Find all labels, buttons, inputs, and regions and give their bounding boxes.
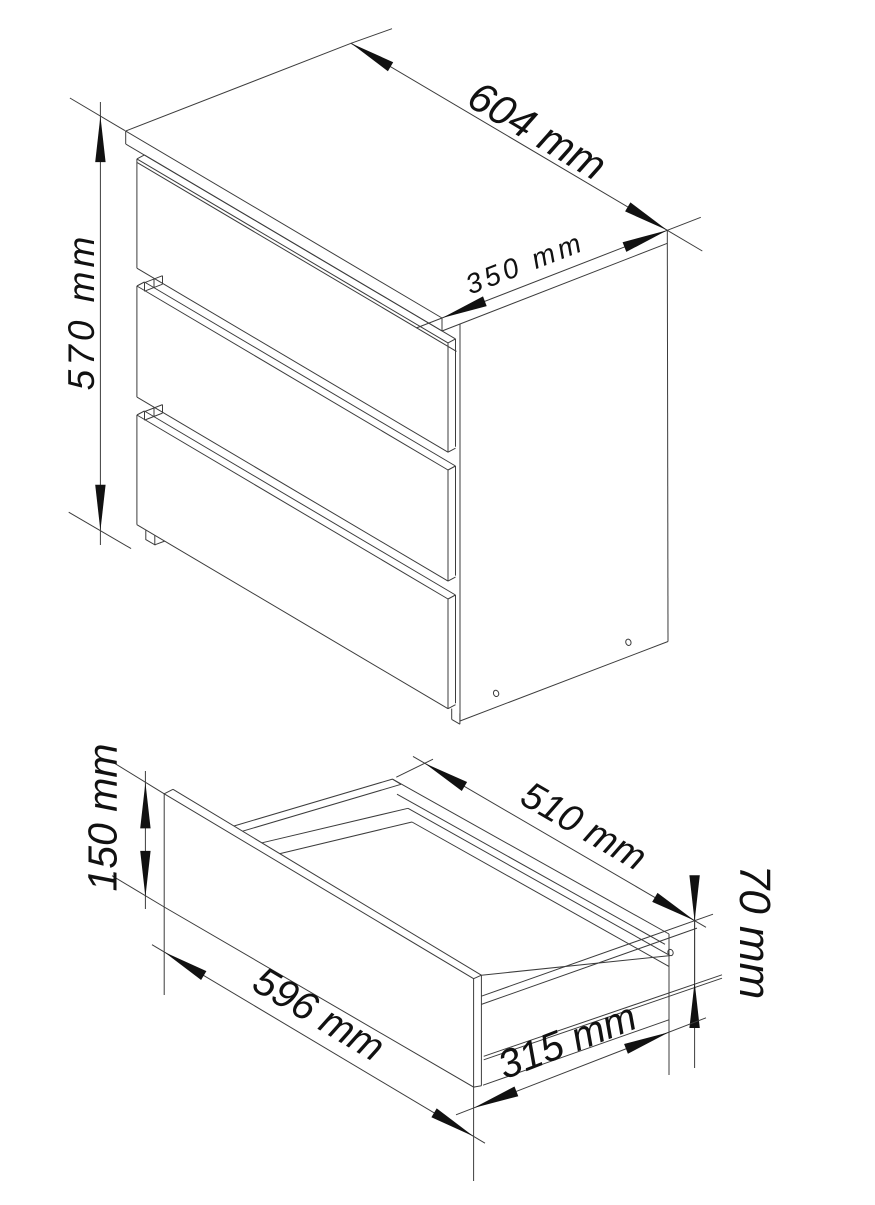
svg-text:70 mm: 70 mm <box>730 865 779 999</box>
svg-text:570 mm: 570 mm <box>61 233 102 391</box>
svg-text:150 mm: 150 mm <box>80 743 126 891</box>
